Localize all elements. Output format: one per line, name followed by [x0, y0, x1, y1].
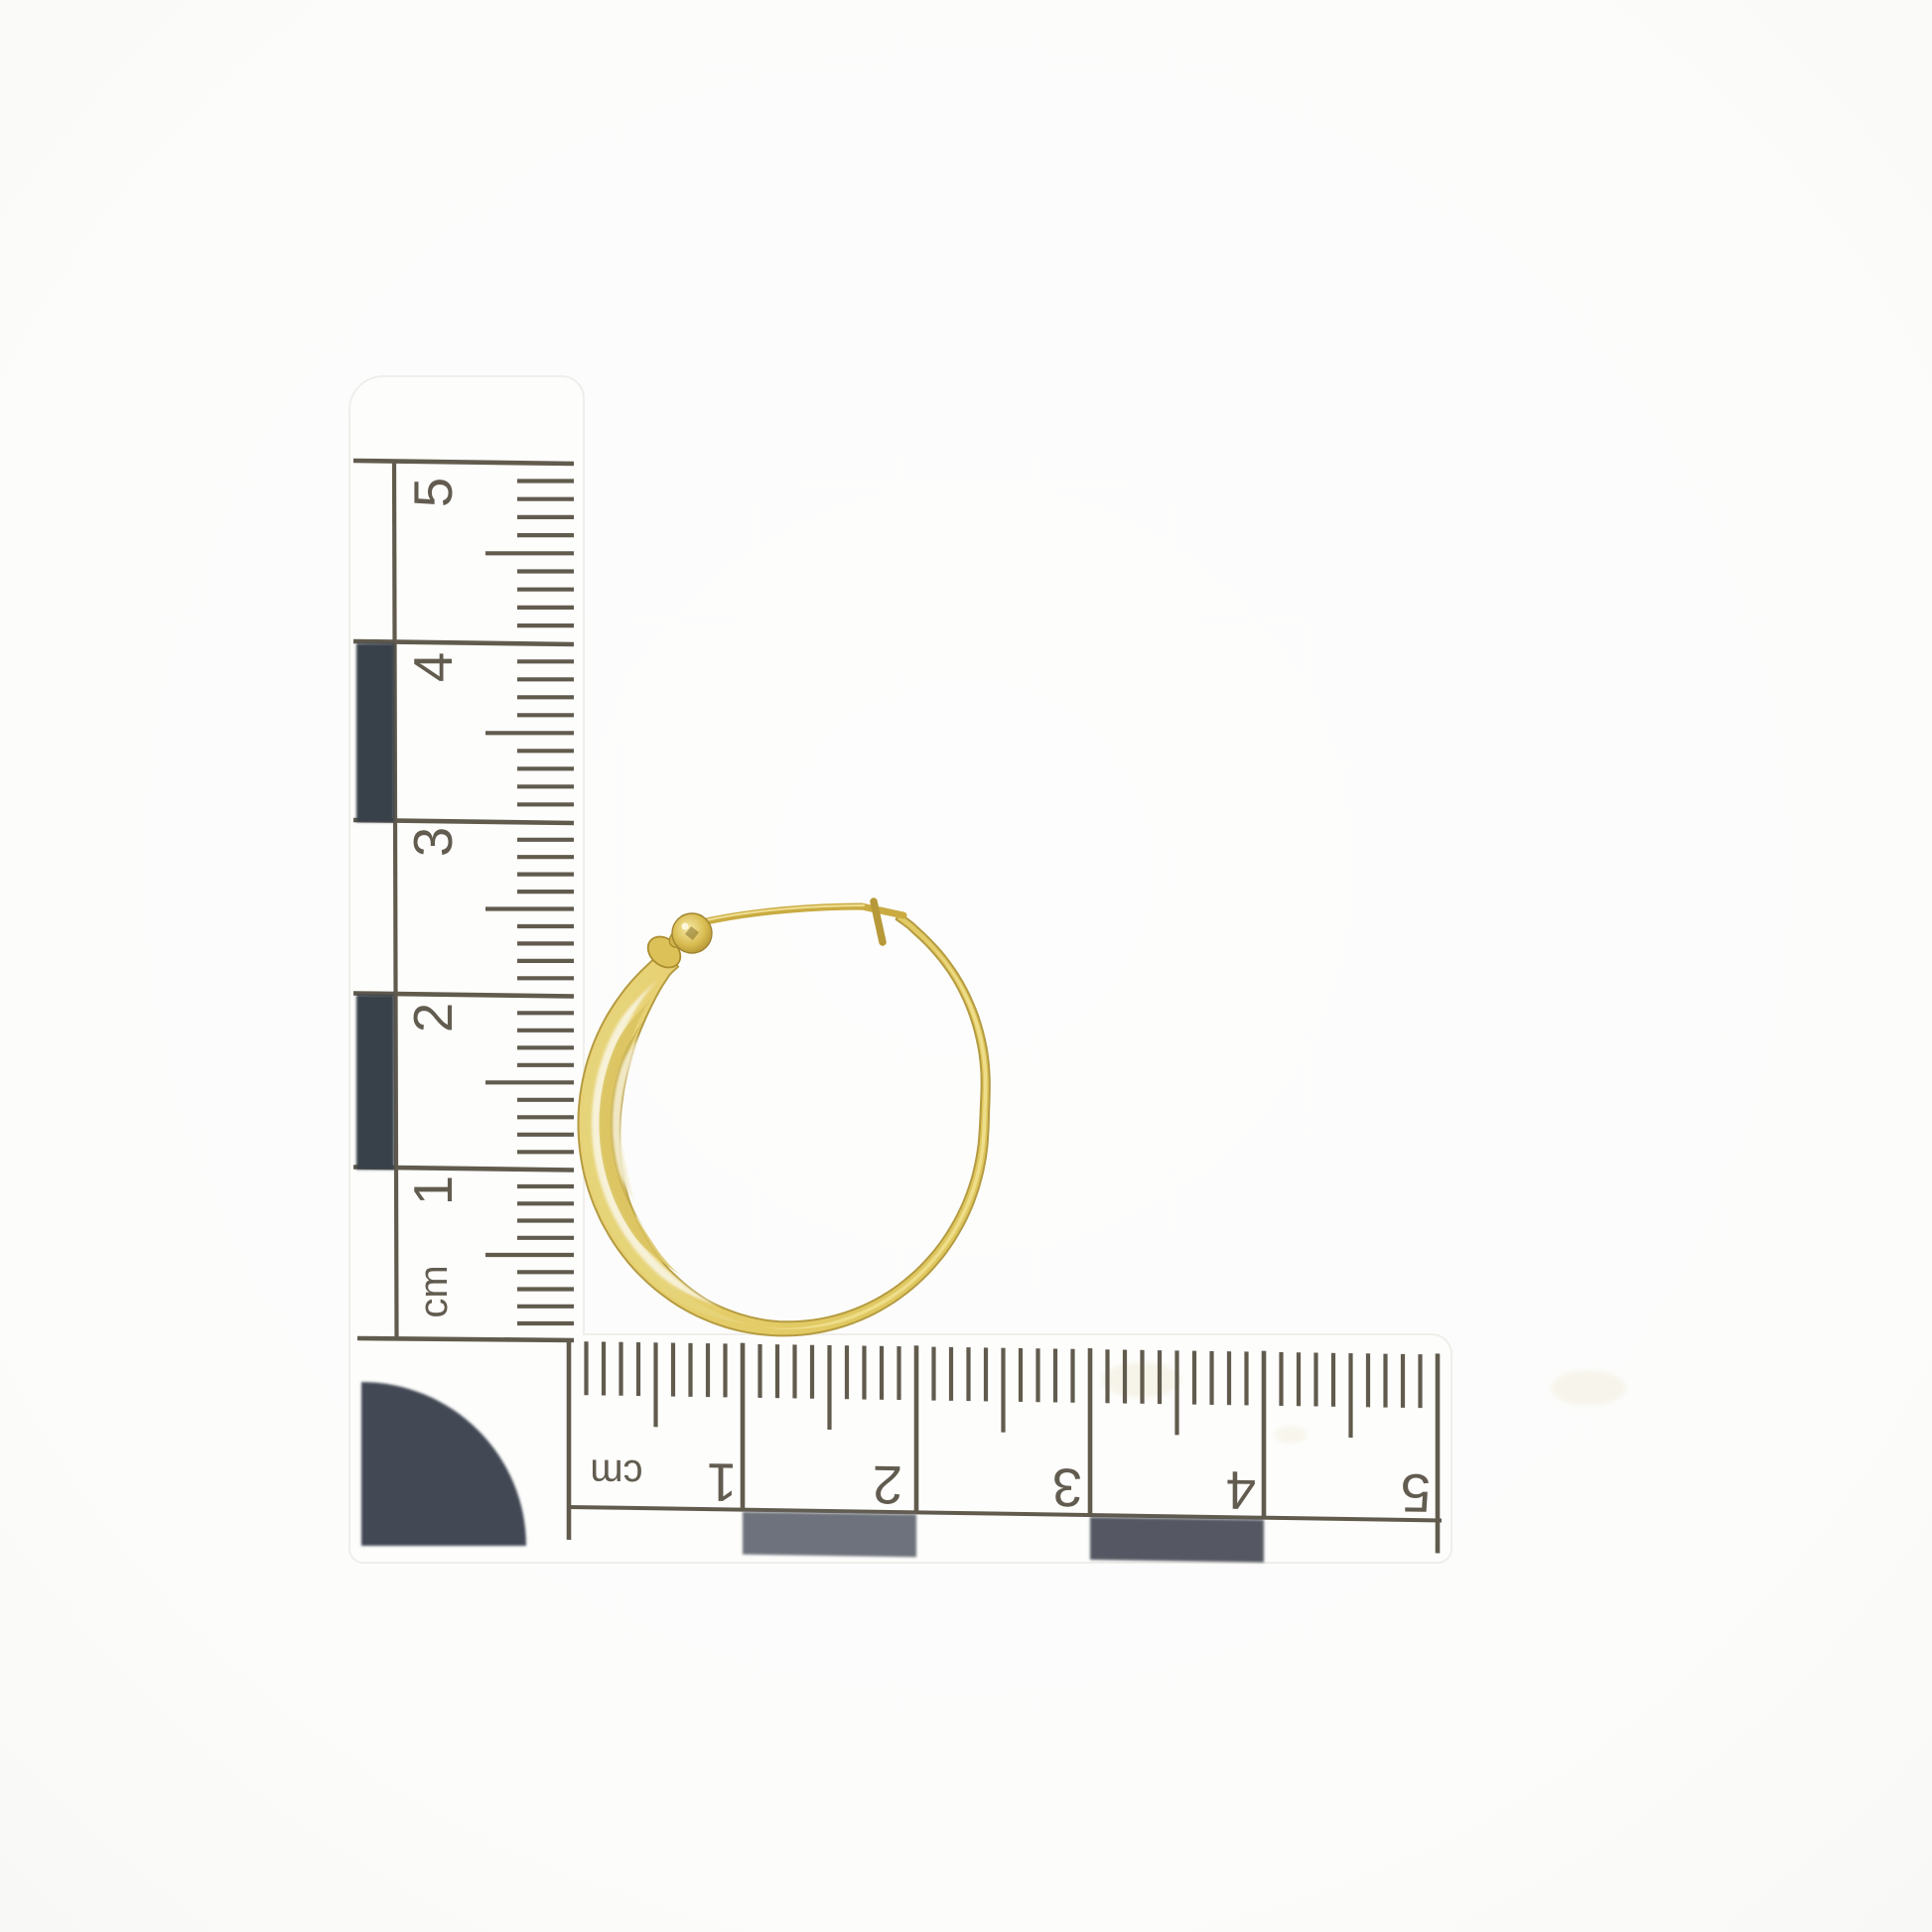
svg-text:5: 5: [403, 478, 464, 507]
svg-text:3: 3: [403, 827, 464, 857]
svg-text:1: 1: [403, 1175, 464, 1205]
svg-text:3: 3: [1052, 1456, 1082, 1517]
svg-text:4: 4: [1226, 1459, 1256, 1520]
svg-text:2: 2: [873, 1454, 902, 1515]
svg-text:2: 2: [403, 1003, 464, 1033]
svg-text:4: 4: [403, 652, 464, 682]
svg-text:cm: cm: [412, 1265, 456, 1317]
svg-text:5: 5: [1401, 1462, 1431, 1523]
svg-text:1: 1: [707, 1451, 737, 1512]
svg-text:cm: cm: [590, 1450, 642, 1495]
